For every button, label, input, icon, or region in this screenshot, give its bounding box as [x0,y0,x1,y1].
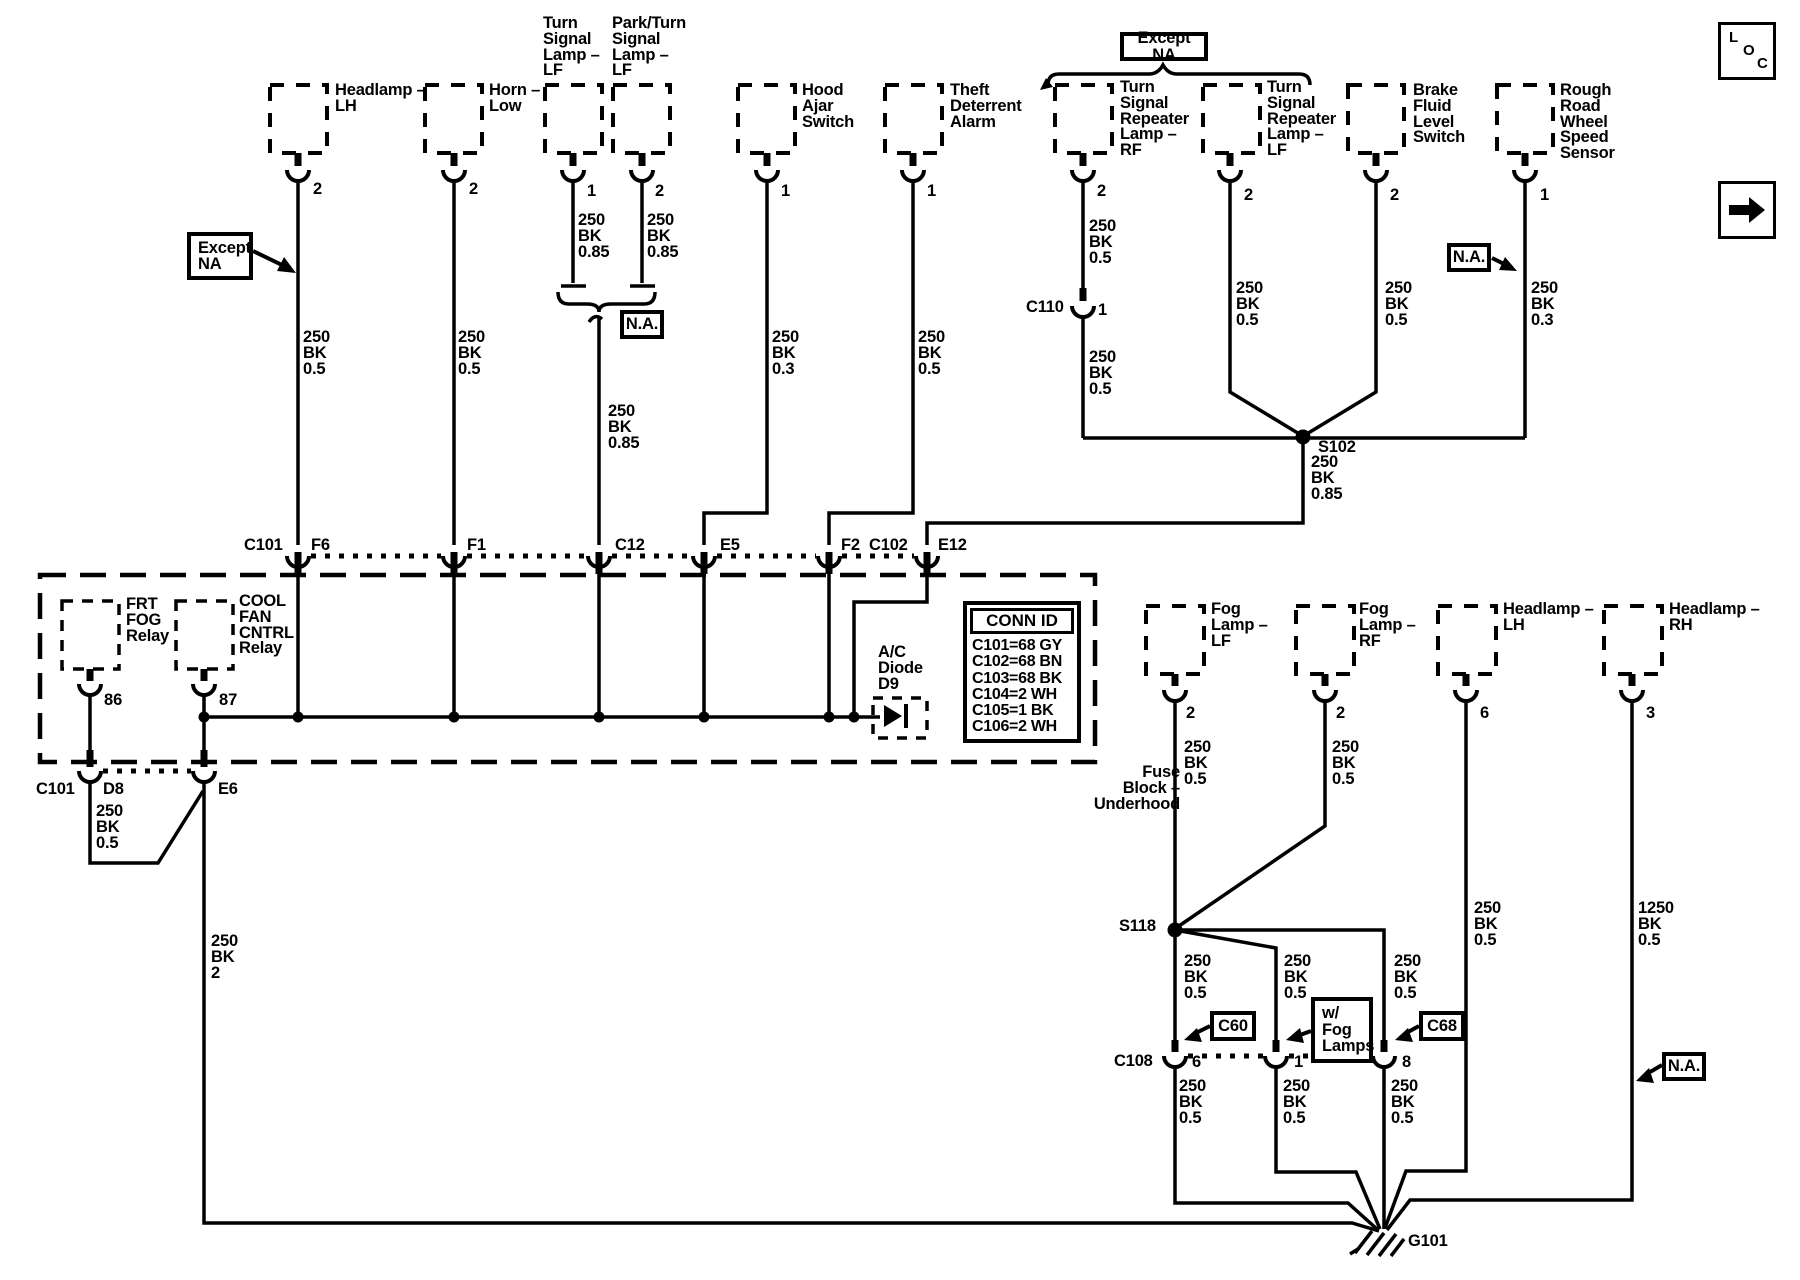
box-cool-fan-relay [176,601,233,669]
label-turn-signal-lamp-lf: Turn Signal Lamp – LF [543,16,600,79]
pin-fog-rf: 2 [1336,705,1345,721]
label-repeater-lf: Turn Signal Repeater Lamp – LF [1267,80,1336,159]
wirelabel-headlamp-lh: 250 BK 0.5 [303,330,330,377]
box-hood-ajar [738,85,795,153]
pin-headlamp-rh: 3 [1646,705,1655,721]
label-headlamp-lh-bottom: Headlamp – LH [1503,602,1594,634]
pin-fog-lf: 2 [1186,705,1195,721]
pin-c110: 1 [1098,302,1107,318]
wirelabel-horn: 250 BK 0.5 [458,330,485,377]
pin-rough: 1 [1540,187,1549,203]
pin-park: 2 [655,183,664,199]
wire-brake-fluid-diag [1305,181,1376,435]
label-c110: C110 [1026,300,1064,316]
label-park-turn-signal-lamp-lf: Park/Turn Signal Lamp – LF [612,16,686,79]
wirelabel-s102-below: 250 BK 0.85 [1311,455,1342,502]
arrow-na-bottom [1650,1065,1662,1072]
wire-hood-e5 [704,181,767,545]
label-c12: C12 [615,538,645,554]
label-g101: G101 [1408,1234,1448,1250]
pin-86: 86 [104,692,122,708]
pin-repeater-lf: 2 [1244,187,1253,203]
label-c102: C102 [869,538,908,554]
label-rough-road-sensor: Rough Road Wheel Speed Sensor [1560,83,1615,162]
wirelabel-theft: 250 BK 0.5 [918,330,945,377]
wirelabel-c108-1: 250 BK 0.5 [1283,1079,1310,1126]
pin-headlamp-lh: 2 [313,181,322,197]
wire-headlamp-rh-ground [1387,701,1632,1230]
loc-letter-l: L [1729,30,1738,45]
wirelabel-fog-lf: 250 BK 0.5 [1184,740,1211,787]
label-d8: D8 [103,782,124,798]
box-theft-alarm [885,85,942,153]
conn-id-row: C102=68 BN [967,654,1077,670]
brace-turn-park [558,292,655,312]
component-boxes [40,85,1662,762]
label-fuse-block-underhood: Fuse Block – Underhood [1060,765,1180,812]
label-c101-row: C101 [244,538,283,554]
label-fog-lamp-lf: Fog Lamp – LF [1211,602,1268,649]
conn-id-row: C106=2 WH [967,719,1077,735]
wirelabel-brake: 250 BK 0.5 [1385,281,1412,328]
ground-symbol-g101 [1350,1231,1404,1256]
wirelabel-s118-branch-1: 250 BK 0.5 [1184,954,1211,1001]
label-f6: F6 [311,538,330,554]
loc-button[interactable]: L O C [1718,22,1776,80]
wirelabel-merged-turn-park: 250 BK 0.85 [608,404,639,451]
label-headlamp-lh: Headlamp – LH [335,83,426,115]
callout-except-na-left: Except NA [187,232,253,280]
conn-id-row: C104=2 WH [967,687,1077,703]
wirelabel-hood: 250 BK 0.3 [772,330,799,377]
label-e5: E5 [720,538,740,554]
wire-theft-f2 [829,181,913,545]
label-fog-lamp-rf: Fog Lamp – RF [1359,602,1416,649]
box-turn-signal-lamp [545,85,602,153]
right-arrow-icon [1721,184,1773,236]
label-ac-diode: A/C Diode D9 [878,645,923,692]
drop-e12 [854,567,927,717]
pin-horn: 2 [469,181,478,197]
arrow-c60 [1198,1026,1210,1032]
wirelabel-c108-6: 250 BK 0.5 [1179,1079,1206,1126]
arrow-c68 [1408,1026,1419,1032]
label-f1: F1 [467,538,486,554]
loc-letter-c: C [1757,56,1768,71]
splice-junction-dots [199,430,1311,938]
wirelabel-headlamp-rh: 1250 BK 0.5 [1638,901,1674,948]
label-repeater-rf: Turn Signal Repeater Lamp – RF [1120,80,1189,159]
pin-turn: 1 [587,183,596,199]
label-f2: F2 [841,538,860,554]
callout-na-mid: N.A. [620,310,664,339]
label-c101-bottom: C101 [36,782,75,798]
arrow-except-na-left [253,251,282,265]
label-brake-fluid-level-switch: Brake Fluid Level Switch [1413,83,1465,146]
diode-symbol [884,704,906,728]
label-cool-fan-relay: COOL FAN CNTRL Relay [239,594,294,657]
pin-headlamp-lh-bottom: 6 [1480,705,1489,721]
label-hood-ajar-switch: Hood Ajar Switch [802,83,854,130]
wirelabel-park: 250 BK 0.85 [647,213,678,260]
box-repeater-lf [1203,85,1260,153]
box-ac-diode [873,698,927,738]
box-fog-lamp-lf [1146,606,1204,674]
wirelabel-d8: 250 BK 0.5 [96,804,123,851]
wirelabel-c110-below: 250 BK 0.5 [1089,350,1116,397]
box-repeater-rf [1055,85,1112,153]
callout-w-fog-lamps: w/ Fog Lamps [1311,997,1373,1063]
conn-id-row: C101=68 GY [967,638,1077,654]
label-s118: S118 [1119,919,1156,935]
wirelabel-fog-rf: 250 BK 0.5 [1332,740,1359,787]
box-brake-fluid [1348,85,1404,153]
conn-id-table: CONN ID C101=68 GY C102=68 BN C103=68 BK… [963,601,1081,743]
wirelabel-repeater-lf: 250 BK 0.5 [1236,281,1263,328]
conn-id-row: C105=1 BK [967,703,1077,719]
wirelabel-headlamp-lh-bottom: 250 BK 0.5 [1474,901,1501,948]
label-e6: E6 [218,782,238,798]
wirelabel-turn: 250 BK 0.85 [578,213,609,260]
pin-c108-8: 8 [1402,1054,1411,1070]
box-frt-fog-relay [62,601,119,669]
box-headlamp-lh [270,85,327,153]
pin-hood: 1 [781,183,790,199]
callout-c68: C68 [1419,1011,1465,1041]
callout-except-na-top: Except NA [1120,32,1208,61]
label-headlamp-rh: Headlamp – RH [1669,602,1760,634]
wire-fog-rf-diag [1176,701,1325,928]
box-headlamp-rh [1604,606,1662,674]
box-park-turn-lamp [613,85,670,153]
wire-s102-e12 [927,437,1303,545]
label-horn-low: Horn – Low [489,83,540,115]
wirelabel-c108-8: 250 BK 0.5 [1391,1079,1418,1126]
splice-s102 [1296,430,1311,445]
arrow-brace-end [1040,78,1053,90]
wirelabel-s118-branch-3: 250 BK 0.5 [1394,954,1421,1001]
box-horn [425,85,482,153]
pin-brake: 2 [1390,187,1399,203]
label-frt-fog-relay: FRT FOG Relay [126,597,169,644]
next-page-button[interactable] [1718,181,1776,239]
wire-e6-ground [204,782,1379,1231]
wirelabel-repeater-rf: 250 BK 0.5 [1089,219,1116,266]
box-headlamp-lh-2 [1438,606,1496,674]
callout-na-bottom: N.A. [1662,1052,1706,1081]
splice-s118 [1168,923,1183,938]
conn-id-row: C103=68 BK [967,671,1077,687]
box-rough-road [1497,85,1553,153]
conn-id-title: CONN ID [970,608,1074,634]
wirelabel-rough: 250 BK 0.3 [1531,281,1558,328]
callout-arrows [253,78,1662,1083]
pin-theft: 1 [927,183,936,199]
label-theft-deterrent-alarm: Theft Deterrent Alarm [950,83,1022,130]
pin-c108-6: 6 [1192,1054,1201,1070]
pin-87: 87 [219,692,237,708]
callout-na-rough: N.A. [1447,243,1491,272]
box-fuse-block [40,575,1095,762]
pin-c108-1: 1 [1294,1054,1303,1070]
box-fog-lamp-rf [1296,606,1354,674]
label-e12: E12 [938,538,967,554]
wirelabel-s118-branch-2: 250 BK 0.5 [1284,954,1311,1001]
wirelabel-e6: 250 BK 2 [211,934,238,981]
label-c108: C108 [1114,1054,1153,1070]
loc-letter-o: O [1743,43,1755,58]
wiring-diagram-canvas: Headlamp – LH Horn – Low Turn Signal Lam… [0,0,1800,1280]
callout-c60: C60 [1210,1011,1256,1041]
pin-repeater-rf: 2 [1097,183,1106,199]
